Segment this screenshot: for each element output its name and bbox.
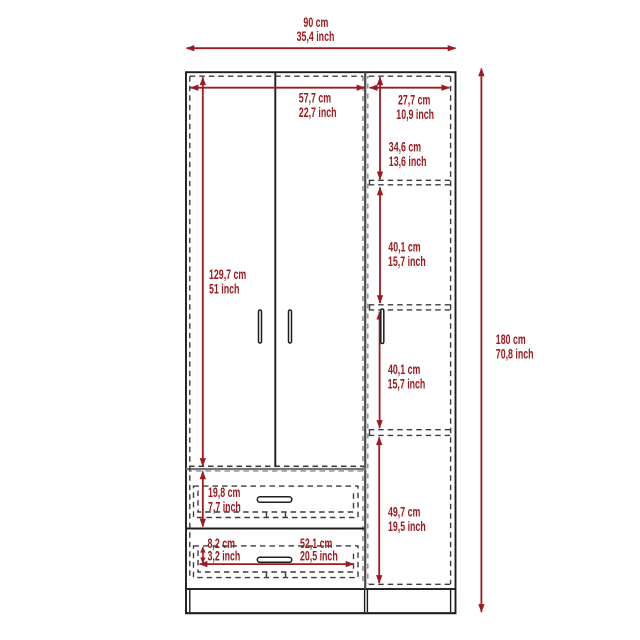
svg-text:13,6 inch: 13,6 inch — [389, 154, 427, 170]
svg-text:40,1 cm: 40,1 cm — [388, 240, 420, 256]
svg-text:19,5 inch: 19,5 inch — [388, 519, 426, 535]
svg-text:20,5 inch: 20,5 inch — [300, 549, 338, 565]
svg-text:19,8 cm: 19,8 cm — [208, 485, 240, 501]
svg-text:40,1 cm: 40,1 cm — [388, 362, 420, 378]
svg-text:180 cm: 180 cm — [496, 332, 526, 348]
svg-text:15,7 inch: 15,7 inch — [388, 377, 426, 393]
svg-text:15,7 inch: 15,7 inch — [388, 254, 426, 270]
svg-text:27,7 cm: 27,7 cm — [398, 92, 430, 108]
svg-text:57,7 cm: 57,7 cm — [299, 90, 331, 106]
svg-text:3,2 inch: 3,2 inch — [208, 549, 241, 565]
svg-text:35,4 inch: 35,4 inch — [297, 29, 335, 45]
svg-text:129,7 cm: 129,7 cm — [209, 267, 246, 283]
svg-text:34,6 cm: 34,6 cm — [389, 140, 421, 156]
svg-text:49,7 cm: 49,7 cm — [388, 505, 420, 521]
svg-text:10,9 inch: 10,9 inch — [396, 107, 434, 123]
svg-text:70,8 inch: 70,8 inch — [496, 347, 534, 363]
svg-text:22,7 inch: 22,7 inch — [299, 105, 337, 121]
svg-text:7,7 inch: 7,7 inch — [208, 500, 241, 516]
svg-text:51 inch: 51 inch — [209, 281, 239, 297]
